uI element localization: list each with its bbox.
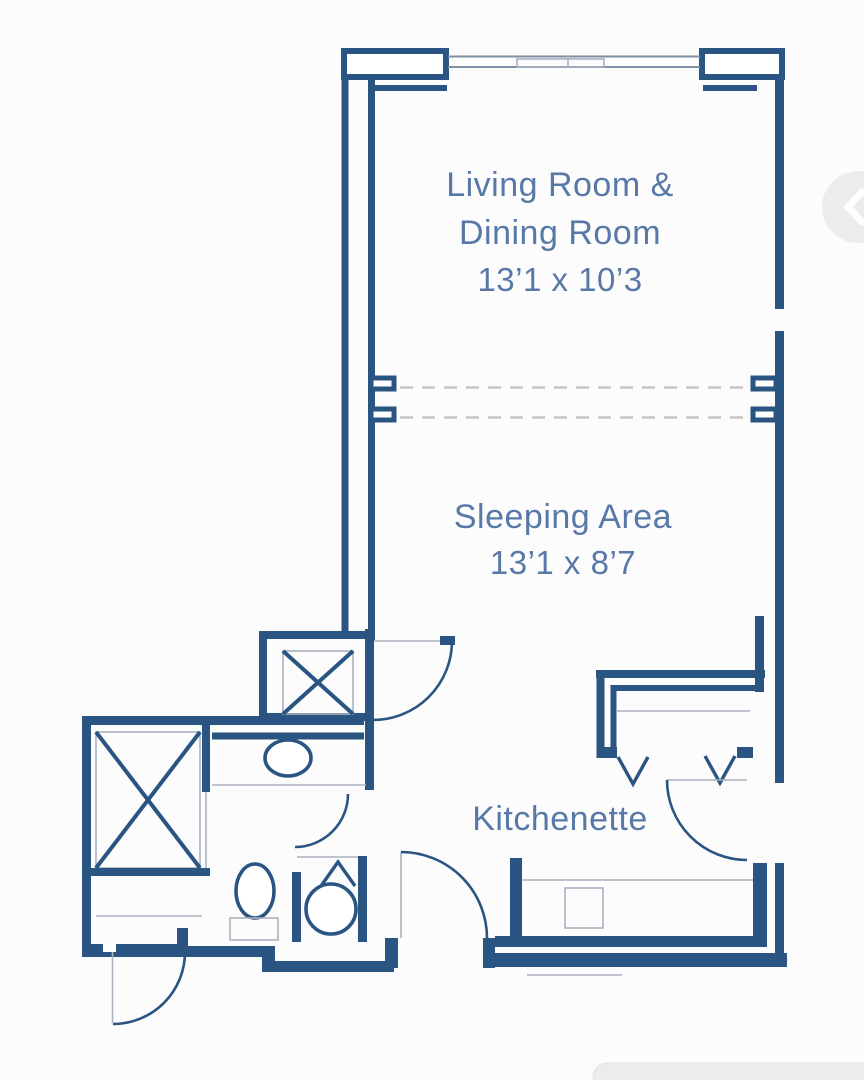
sleeping-hall-door — [370, 629, 456, 790]
carousel-next-circle[interactable] — [822, 171, 864, 243]
kitchen-closet — [596, 616, 765, 784]
kitchen-partition-stub — [510, 858, 522, 940]
top-left-wall-block — [344, 51, 446, 77]
bathroom — [212, 740, 366, 857]
divider-stub-right-bottom — [753, 409, 776, 420]
wc-bottom-wall — [186, 946, 264, 957]
window-top — [448, 56, 700, 68]
kitchen-closet-notch-left — [604, 747, 617, 758]
bottom-right-panel — [593, 1063, 864, 1080]
living-room-label-line1: Living Room & — [446, 166, 674, 204]
corridor-door-arc — [667, 780, 747, 860]
bottom-left-door-arc — [113, 952, 185, 1024]
closet-door-v-marker-left — [618, 757, 648, 784]
kitchen-sink-square — [565, 888, 603, 928]
kitchen-bottom-wall-inner — [495, 936, 767, 947]
bottom-left-wall-band — [82, 944, 188, 957]
corridor-door — [667, 780, 747, 860]
wc-room — [230, 856, 363, 942]
divider-stub-right-top — [753, 378, 776, 389]
divider-stub-left-top — [371, 378, 394, 389]
sink-icon — [265, 740, 311, 776]
toilet-icon — [236, 864, 274, 918]
left-block — [82, 716, 394, 1024]
kitchenette-area — [483, 858, 787, 975]
kitchenette-label: Kitchenette — [472, 800, 648, 838]
closet-door-v-marker-right — [705, 756, 735, 783]
entry-left-jamb — [385, 938, 398, 968]
kitchen-right-wall-inner — [753, 863, 767, 947]
sleeping-closet — [259, 631, 366, 721]
door-swing-arc — [373, 641, 452, 720]
floor-plan: Living Room & Dining Room 13’1 x 10’3 Sl… — [0, 0, 864, 1080]
top-right-wall-block — [702, 51, 782, 77]
living-room-dimensions: 13’1 x 10’3 — [477, 261, 642, 298]
room-labels: Living Room & Dining Room 13’1 x 10’3 Sl… — [446, 166, 674, 838]
kitchen-closet-notch-right — [737, 747, 753, 758]
lower-bottom-wall — [262, 961, 394, 972]
entry-door — [385, 852, 487, 968]
bathroom-door-arc — [295, 794, 348, 847]
living-room-label-line2: Dining Room — [459, 214, 661, 252]
bottom-left-wall-notch — [103, 944, 116, 952]
room-divider — [371, 378, 776, 420]
toilet-tank — [230, 918, 278, 940]
shower-chevron-icon — [321, 862, 355, 886]
window-pane — [517, 59, 604, 67]
sleeping-area-dimensions: 13’1 x 8’7 — [490, 544, 636, 581]
entry-door-arc — [401, 852, 487, 938]
floor-plan-page: Living Room & Dining Room 13’1 x 10’3 Sl… — [0, 0, 864, 1080]
shower-icon — [306, 884, 356, 934]
sleeping-area-label: Sleeping Area — [454, 498, 672, 536]
carousel-next-button[interactable] — [822, 171, 864, 243]
divider-stub-left-bottom — [371, 409, 394, 420]
kitchen-bottom-wall-outer — [483, 953, 787, 967]
